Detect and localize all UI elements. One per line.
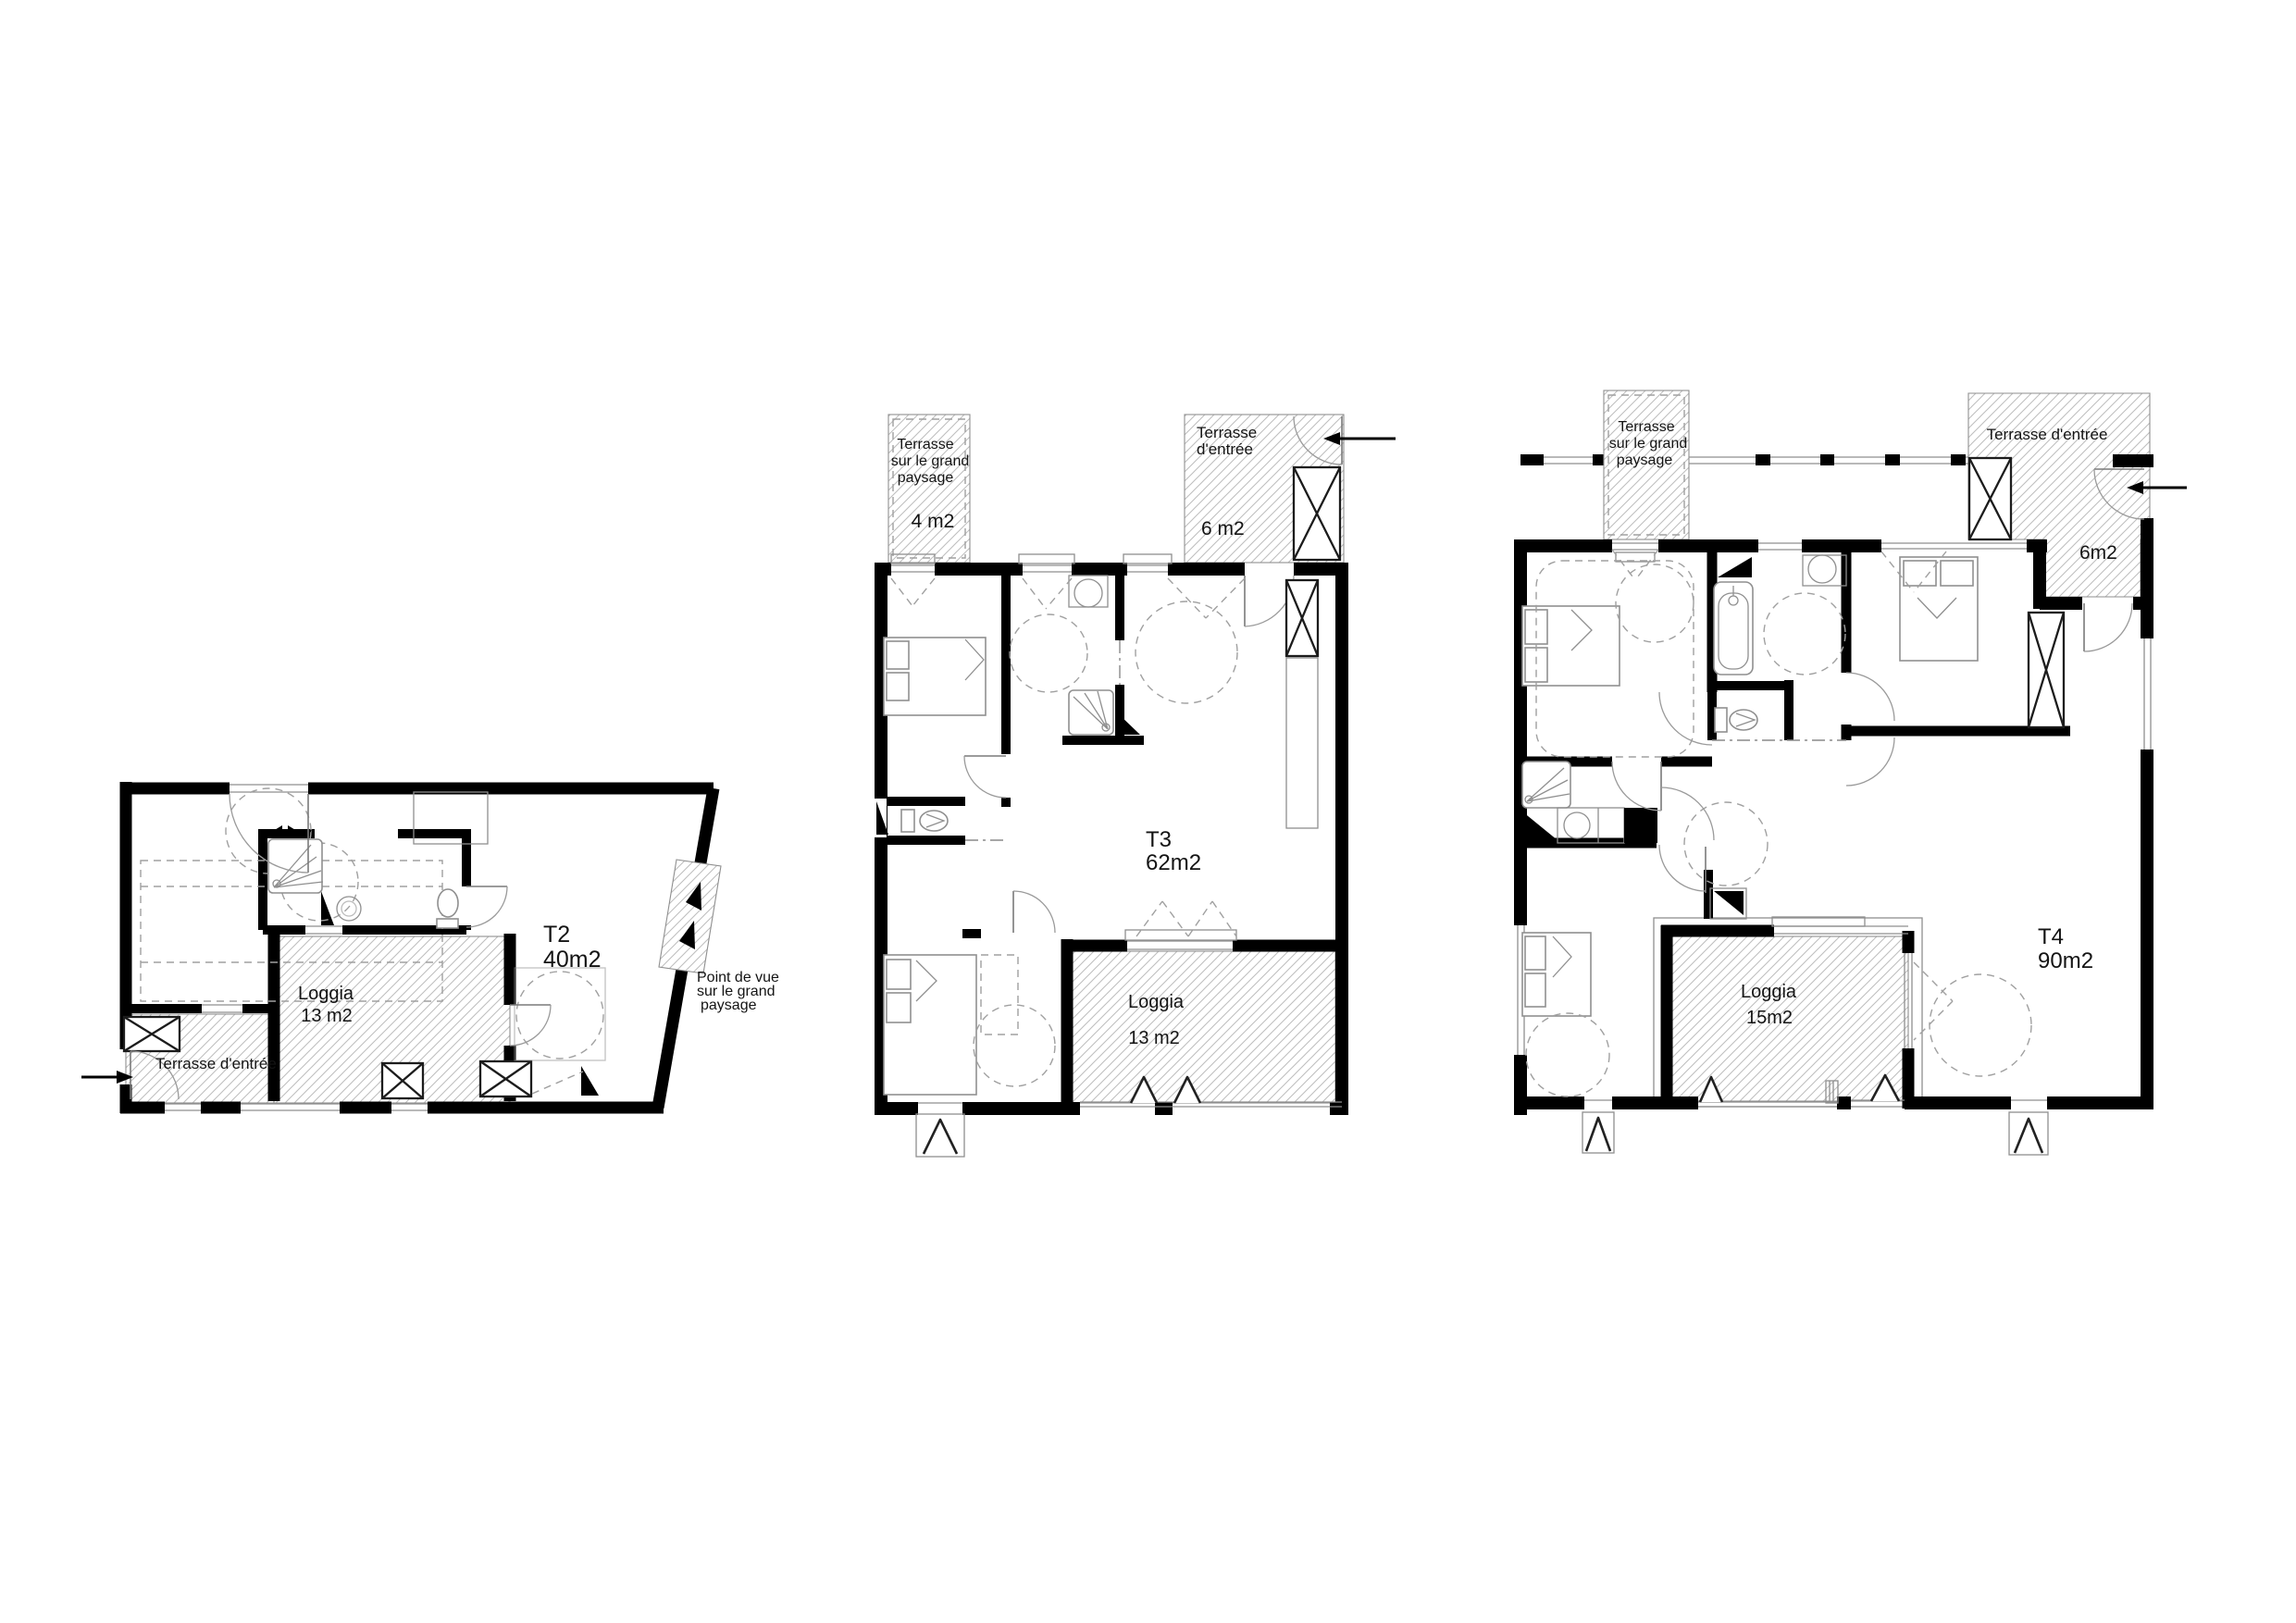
t3-entry-terrace-label-2: d'entrée [1197, 440, 1253, 459]
t4-kitchen-icons [1522, 762, 1657, 843]
t4-closet-icon-bedroom2 [2029, 613, 2064, 727]
t2-closet-icon-left [124, 1017, 180, 1051]
t4-railing [1520, 457, 1968, 464]
t4-landscape-terrace-label-3: paysage [1617, 452, 1673, 469]
t3-entry-terrace-label-1: Terrasse [1197, 424, 1257, 442]
t2-closet-icon-bottom [382, 1063, 423, 1098]
t3-shower-icon [1069, 690, 1113, 735]
t4-terrace-closet-icon [1969, 458, 2011, 539]
t3-loggia-area [1073, 951, 1335, 1103]
t3-loggia-area-label: 13 m2 [1128, 1028, 1180, 1049]
t4-bed-icon-master [1522, 606, 1620, 686]
t3-bed-icon-1 [884, 638, 986, 715]
t3-bed-icon-2 [884, 955, 976, 1095]
t3-landscape-terrace-label-3: paysage [898, 470, 954, 487]
floorplan-sheet: T2 40m2 Loggia 13 m2 Terrasse d'entrée P… [0, 0, 2296, 1623]
t4-title: T4 [2038, 924, 2064, 950]
t2-entry-terrace-label: Terrasse d'entrée [155, 1055, 277, 1073]
t4-plan [1514, 390, 2187, 1155]
t4-entry-terrace-area-label: 6m2 [2079, 542, 2117, 564]
t4-landscape-terrace-label-1: Terrasse [1618, 419, 1674, 436]
t3-title: T3 [1146, 827, 1172, 853]
t4-landscape-terrace-label-2: sur le grand [1609, 436, 1688, 452]
t4-bed-icon-3 [1522, 933, 1591, 1016]
t3-terrace-closet-icon [1294, 467, 1340, 560]
t2-toilet-icon [437, 889, 458, 928]
t3-landscape-terrace-area-label: 4 m2 [912, 511, 955, 533]
t3-closet-icon [1286, 580, 1318, 828]
t3-wardrobe-ghost [981, 955, 1018, 1035]
t4-kitchen-sink-icon [1564, 812, 1590, 838]
t3-entry-terrace-area-label: 6 m2 [1201, 518, 1245, 540]
t3-doors [964, 576, 1294, 933]
t3-toilet-icon [901, 810, 948, 832]
t2-sink-icon [337, 897, 361, 921]
t4-bath-sink-icon [1803, 555, 1846, 586]
t2-closet-icon-living [480, 1061, 531, 1096]
t4-bathtub-icon [1714, 582, 1753, 675]
t4-toilet-icon [1715, 708, 1757, 732]
floorplan-canvas [0, 0, 2296, 1623]
t2-area-label: 40m2 [543, 947, 602, 973]
t3-window-swings [891, 578, 1245, 936]
t2-loggia-area-label: 13 m2 [301, 1006, 353, 1027]
t4-hall-threshold-icon [1710, 888, 1746, 919]
t3-sill-steps [891, 554, 1236, 940]
t2-loggia-label: Loggia [298, 984, 354, 1005]
t4-bath-marker-icon [1718, 557, 1752, 577]
t2-threshold-icon [581, 1066, 599, 1096]
t3-interior-walls [887, 576, 1144, 934]
t3-landscape-terrace-label-2: sur le grand [891, 453, 970, 470]
t4-loggia-area-label: 15m2 [1746, 1008, 1793, 1029]
t4-loggia-label: Loggia [1741, 982, 1796, 1003]
t4-entry-terrace-label: Terrasse d'entrée [1987, 426, 2108, 444]
t3-landscape-terrace-label-1: Terrasse [897, 437, 953, 453]
t3-area-label: 62m2 [1146, 850, 1201, 876]
t2-title: T2 [543, 922, 570, 948]
t2-viewpoint-label-3: paysage [701, 997, 757, 1014]
t2-bay-window-icon [659, 860, 721, 973]
t3-sink-icon [1069, 576, 1108, 607]
t4-area-label: 90m2 [2038, 948, 2093, 974]
t3-loggia-label: Loggia [1128, 992, 1184, 1013]
t4-bed-icon-2 [1900, 557, 1978, 661]
